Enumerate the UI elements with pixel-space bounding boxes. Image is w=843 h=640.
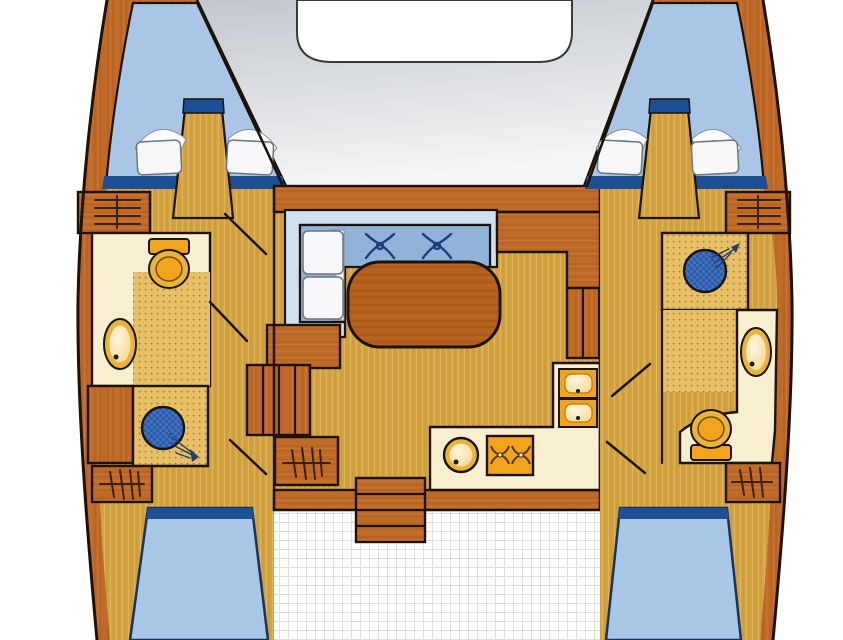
washbasin-port [104,319,136,369]
pillow [136,140,182,175]
toilet-bowl [156,257,182,281]
floor-plan-canvas [0,0,843,640]
sofa-pillow [303,277,343,319]
pillow [597,140,643,175]
drain [576,389,580,393]
port-head-floor [133,272,210,386]
berth-aft-starboard [606,508,741,640]
pillow [691,140,739,175]
drain [454,460,459,465]
toilet-port [149,239,189,288]
salon-table [348,262,500,347]
starboard-walkway-cap [649,99,690,113]
berth-aft-port [130,508,268,640]
galley-double-sink [559,369,597,427]
basin-bowl [110,326,131,363]
berth-aft-port-head-edge [146,508,254,519]
port-locker [88,386,133,463]
drain [750,362,755,367]
salon-front-wall [274,186,600,212]
port-side-cabinet [267,325,340,368]
drain [576,416,580,420]
berth-aft-starboard-head-edge [618,508,729,519]
boat-floor-plan [0,0,843,640]
sofa-pillow [303,231,343,274]
port-walkway-cap [183,99,224,113]
port-bow-ladder-box [78,192,150,233]
washbasin-starboard [741,328,771,376]
galley-stove [487,436,533,475]
trampoline [297,0,572,62]
steps-to-port-hull [247,365,310,435]
toilet-starboard [691,410,731,460]
toilet-bowl [698,417,724,441]
salon-aft-wall [274,490,600,510]
pillow [226,140,274,175]
galley-round-sink [444,438,478,472]
shower-port [142,407,184,449]
cockpit-steps [356,478,425,542]
cockpit [274,510,600,640]
drain [114,355,119,360]
shower-starboard [684,250,726,292]
port-companionway-box [275,437,338,485]
starboard-head-floor [662,310,737,392]
basin-bowl [746,334,766,370]
